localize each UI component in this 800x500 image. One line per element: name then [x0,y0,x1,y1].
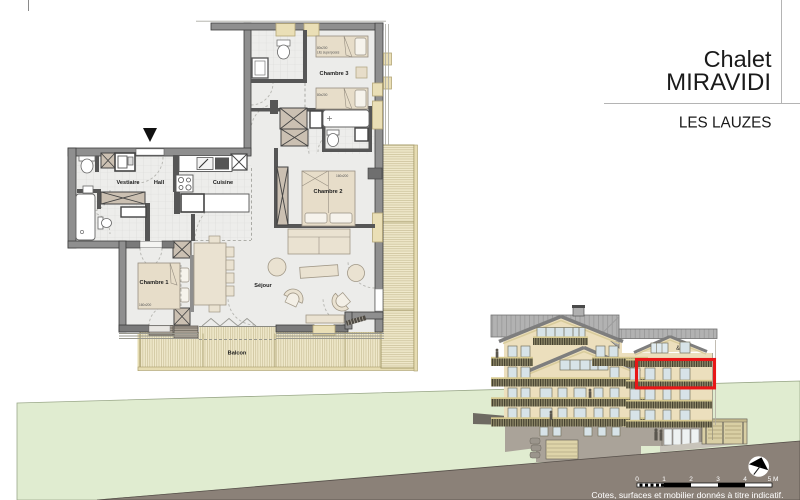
svg-text:3: 3 [716,476,720,483]
svg-text:&: & [676,346,680,352]
svg-text:2: 2 [689,476,693,483]
svg-text:Chambre 3: Chambre 3 [320,71,349,77]
svg-text:5 M: 5 M [768,476,779,483]
svg-text:Chambre 1: Chambre 1 [140,280,169,286]
svg-text:Cotes, surfaces et mobilier do: Cotes, surfaces et mobilier donnés à tit… [591,490,783,500]
svg-text:160x200: 160x200 [139,303,151,307]
svg-text:MIRAVIDI: MIRAVIDI [666,69,771,96]
svg-text:1: 1 [662,476,666,483]
svg-text:Cuisine: Cuisine [213,180,233,186]
svg-text:Séjour: Séjour [254,283,272,289]
svg-text:Hall: Hall [154,180,165,186]
svg-text:Chambre 2: Chambre 2 [314,189,343,195]
svg-text:Vestiaire: Vestiaire [116,180,139,186]
svg-text:Balcon: Balcon [228,351,247,357]
svg-text:80x200: 80x200 [317,93,328,97]
svg-text:80x200: 80x200 [317,46,328,50]
svg-text:Lits superposés: Lits superposés [317,51,340,55]
svg-text:LES LAUZES: LES LAUZES [679,115,772,132]
svg-text:4: 4 [743,476,747,483]
svg-text:0: 0 [635,476,639,483]
svg-text:160x200: 160x200 [336,174,348,178]
